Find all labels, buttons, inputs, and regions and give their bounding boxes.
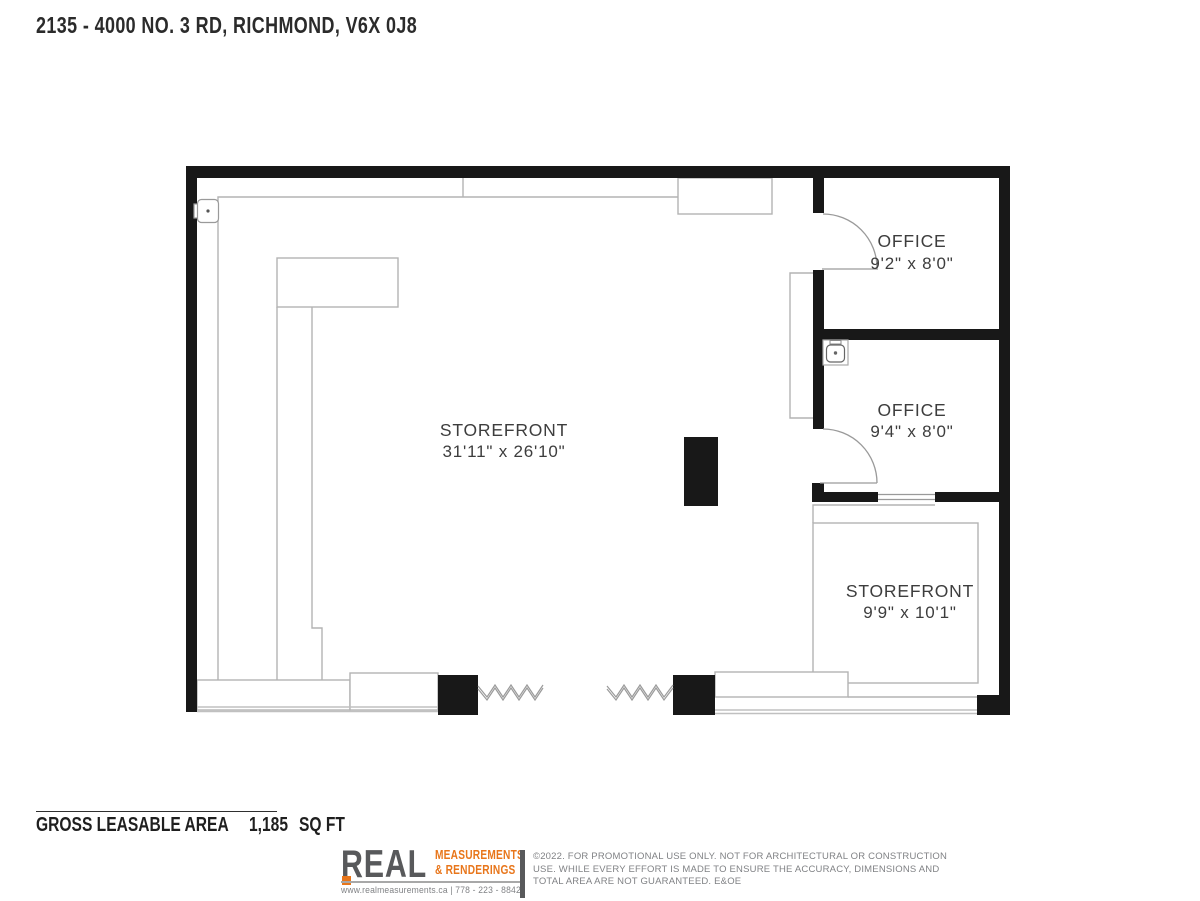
footer-divider	[520, 850, 525, 898]
disclaimer-line-3: TOTAL AREA ARE NOT GUARANTEED. E&OE	[533, 876, 947, 889]
wall-office-divider	[813, 329, 999, 340]
disclaimer-line-1: ©2022. FOR PROMOTIONAL USE ONLY. NOT FOR…	[533, 851, 947, 864]
gross-leasable-area-label: GROSS LEASABLE AREA	[36, 814, 229, 836]
footer: REAL MEASUREMENTS & RENDERINGS www.realm…	[335, 845, 895, 901]
room-label-storefront-2: STOREFRONT	[846, 581, 974, 601]
room-dims-office-2: 9'4" x 8'0"	[870, 422, 953, 441]
room-dims-office-1: 9'2" x 8'0"	[870, 254, 953, 273]
floor-plan: STOREFRONT 31'11" x 26'10" OFFICE 9'2" x…	[0, 0, 1200, 900]
sink-icon	[823, 340, 848, 365]
pier-right	[673, 675, 715, 715]
bulkhead	[678, 178, 772, 214]
column	[684, 437, 718, 506]
disclaimer-line-2: USE. WHILE EVERY EFFORT IS MADE TO ENSUR…	[533, 864, 947, 877]
brand-subtitle-line1: MEASUREMENTS	[435, 847, 524, 862]
brand-subtitle-line2: & RENDERINGS	[435, 862, 524, 877]
brand-logo: REAL	[341, 845, 427, 884]
gross-leasable-area: GROSS LEASABLE AREA1,185SQ FT	[36, 811, 277, 837]
electrical-panel-icon	[194, 200, 219, 223]
wall-office-vertical-a	[813, 178, 824, 213]
sill-left-a	[197, 680, 350, 710]
gross-leasable-area-unit: SQ FT	[299, 814, 345, 836]
wall-nib	[790, 273, 813, 418]
zigzag-glazing-icon	[478, 685, 673, 700]
wall-office-vertical-b	[813, 270, 824, 429]
glazing-right	[715, 710, 977, 714]
wall-right	[999, 166, 1010, 712]
door-arc-office-2	[823, 429, 877, 483]
room-dims-storefront-2: 9'9" x 10'1"	[863, 603, 956, 622]
door-arc-office-1	[823, 214, 877, 268]
sill-right	[715, 672, 848, 697]
brand-subtitle: MEASUREMENTS & RENDERINGS	[435, 847, 524, 877]
wall-office2-bottom-a	[812, 492, 878, 502]
sill-left-b	[350, 673, 438, 710]
counter-run	[277, 307, 322, 680]
corner-block	[977, 695, 1010, 715]
wall-top	[186, 166, 1010, 178]
wall-left	[186, 166, 197, 712]
window-office-2	[878, 495, 935, 500]
brand-contact: www.realmeasurements.ca | 778 - 223 - 88…	[341, 885, 521, 896]
pier-left	[438, 675, 478, 715]
room-dims-storefront-main: 31'11" x 26'10"	[443, 442, 566, 461]
room-label-office-2: OFFICE	[878, 400, 947, 420]
inset-line-top	[813, 505, 935, 523]
room-label-storefront-main: STOREFRONT	[440, 420, 568, 440]
wall-office2-bottom-b	[935, 492, 999, 502]
room-label-office-1: OFFICE	[878, 231, 947, 251]
room-labels: STOREFRONT 31'11" x 26'10" OFFICE 9'2" x…	[440, 231, 974, 622]
disclaimer: ©2022. FOR PROMOTIONAL USE ONLY. NOT FOR…	[533, 851, 947, 889]
gross-leasable-area-value: 1,185	[249, 814, 288, 836]
counter-top	[277, 258, 398, 307]
brand-rule	[341, 881, 523, 883]
